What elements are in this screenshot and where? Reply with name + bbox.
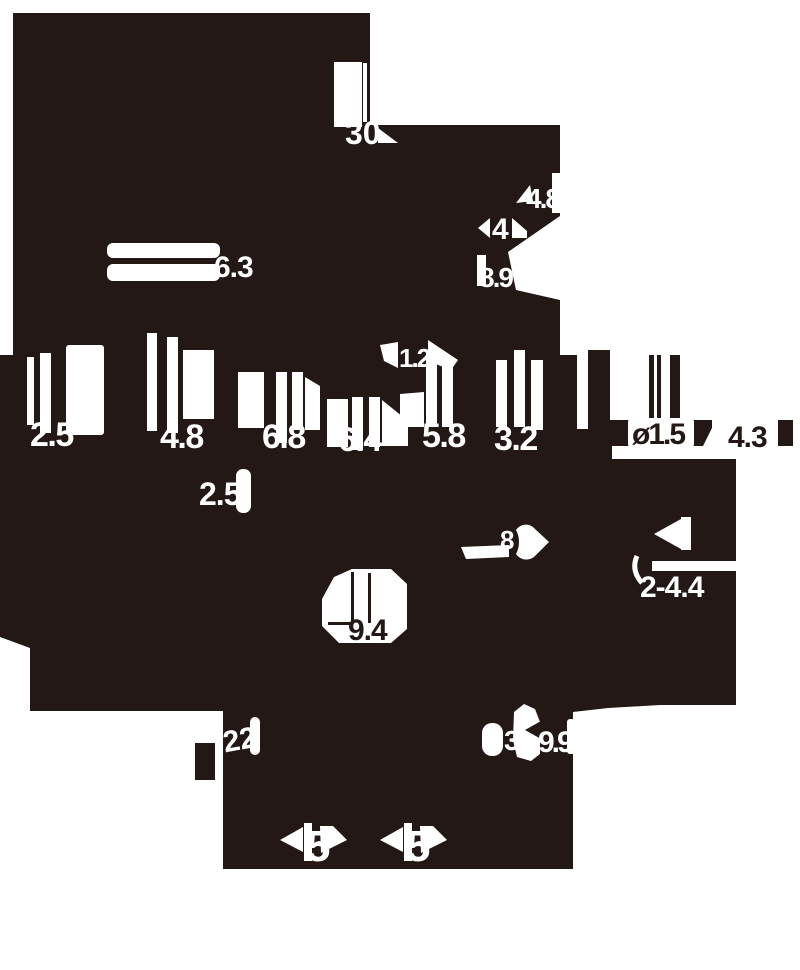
- extension-line: [514, 350, 525, 427]
- slot-shape: [107, 264, 220, 281]
- leader-wedge: [305, 377, 320, 430]
- arrow-lobe: [250, 717, 260, 755]
- extension-line: [363, 63, 367, 122]
- dim-89-label: 8.9: [479, 262, 513, 293]
- black-top-band: [13, 13, 370, 125]
- part-edge-column: [588, 350, 610, 430]
- part-gap-column: [577, 350, 588, 429]
- black-lower-mass: [0, 446, 736, 869]
- dim-30-label: 30: [345, 115, 381, 151]
- dim-2x44-label: 2-4.4: [640, 571, 705, 604]
- dimension-line-bar: [238, 372, 264, 428]
- dimension-line-bar: [183, 350, 214, 419]
- dim-8-label: 8: [500, 525, 514, 555]
- dim-58-label: 5.8: [422, 417, 465, 455]
- dim-68-label: 6.8: [262, 418, 305, 456]
- dim-48-label: 4.8: [160, 418, 203, 456]
- dim-48-top-label: 4.8: [526, 183, 560, 214]
- extension-line: [567, 719, 575, 754]
- arrow-tail-bar: [681, 517, 691, 550]
- dim-32: 3.2: [494, 350, 543, 458]
- dim-32-label: 3.2: [494, 420, 537, 458]
- pad-shape: [482, 723, 503, 756]
- dim-64-label: 6.4: [338, 421, 382, 459]
- extension-line: [27, 357, 34, 425]
- black-upper-left-block: [13, 125, 560, 355]
- slot-shape: [107, 243, 220, 258]
- extension-line: [649, 355, 654, 420]
- leader-wedge: [400, 392, 424, 427]
- dimension-line: [328, 622, 350, 625]
- extension-line: [147, 333, 157, 431]
- technical-drawing: 30 6.3 4.8 4 8.9 1.2: [0, 0, 800, 970]
- dim-4-label: 4: [492, 213, 509, 246]
- dim-25-mid: 2.5: [199, 469, 251, 513]
- extension-line: [670, 355, 680, 420]
- extension-line: [496, 360, 507, 427]
- dim-25-mid-label: 2.5: [199, 476, 241, 512]
- dim-94-label: 9.4: [348, 614, 388, 647]
- extension-line: [426, 350, 437, 427]
- part-edge-column: [560, 355, 577, 429]
- leader-line: [652, 561, 736, 571]
- arrow-lobe: [236, 469, 251, 513]
- extension-line: [657, 355, 661, 420]
- dim-12-label: 1.2: [399, 343, 431, 373]
- dim-94: 9.4: [322, 569, 407, 647]
- below-band-gap: [612, 446, 736, 459]
- dim-63-label: 6.3: [214, 251, 253, 284]
- dim-25-label: 2.5: [30, 416, 73, 454]
- drawing-svg: 30 6.3 4.8 4 8.9 1.2: [0, 0, 800, 970]
- extension-line: [195, 743, 215, 780]
